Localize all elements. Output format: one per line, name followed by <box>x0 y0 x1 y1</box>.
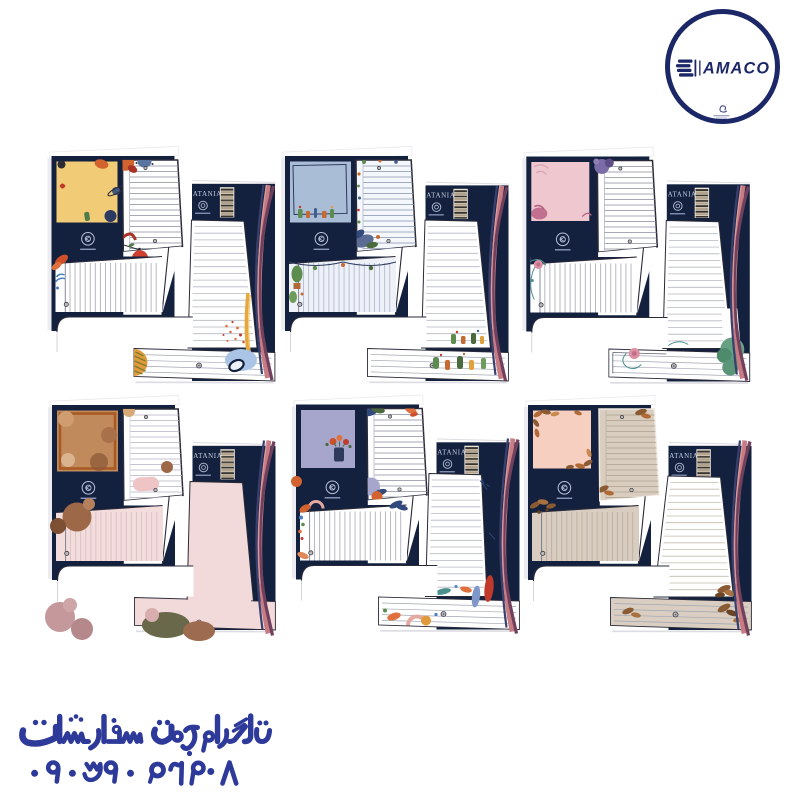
svg-text:ATANIA: ATANIA <box>426 191 455 199</box>
svg-text:ATANIA: ATANIA <box>193 190 222 198</box>
svg-text:ATANIA: ATANIA <box>437 448 466 456</box>
svg-text:ATANIA: ATANIA <box>668 190 697 198</box>
svg-text:ATANIA: ATANIA <box>669 452 698 460</box>
svg-text:AMACO: AMACO <box>702 60 770 78</box>
svg-text:ATANIA: ATANIA <box>193 452 222 460</box>
